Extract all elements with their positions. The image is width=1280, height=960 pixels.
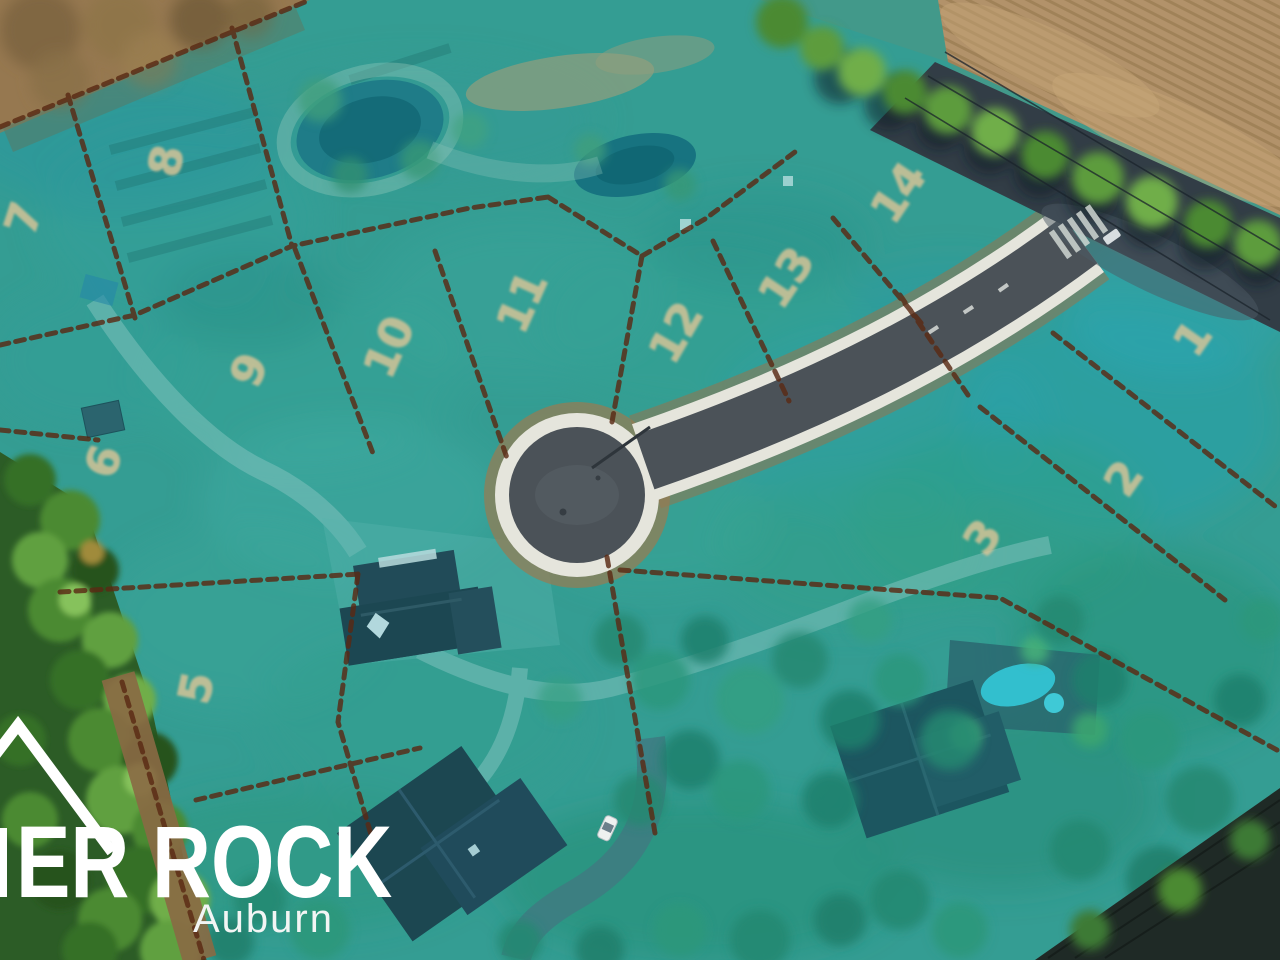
- aerial-photo: 123567891011121314 ER ROCK Auburn: [0, 0, 1280, 960]
- partial-letter: [0, 828, 7, 897]
- manhole: [560, 509, 567, 516]
- brand-city: Auburn: [193, 897, 334, 941]
- aerial-photo-canvas: 123567891011121314 ER ROCK Auburn: [0, 0, 1280, 960]
